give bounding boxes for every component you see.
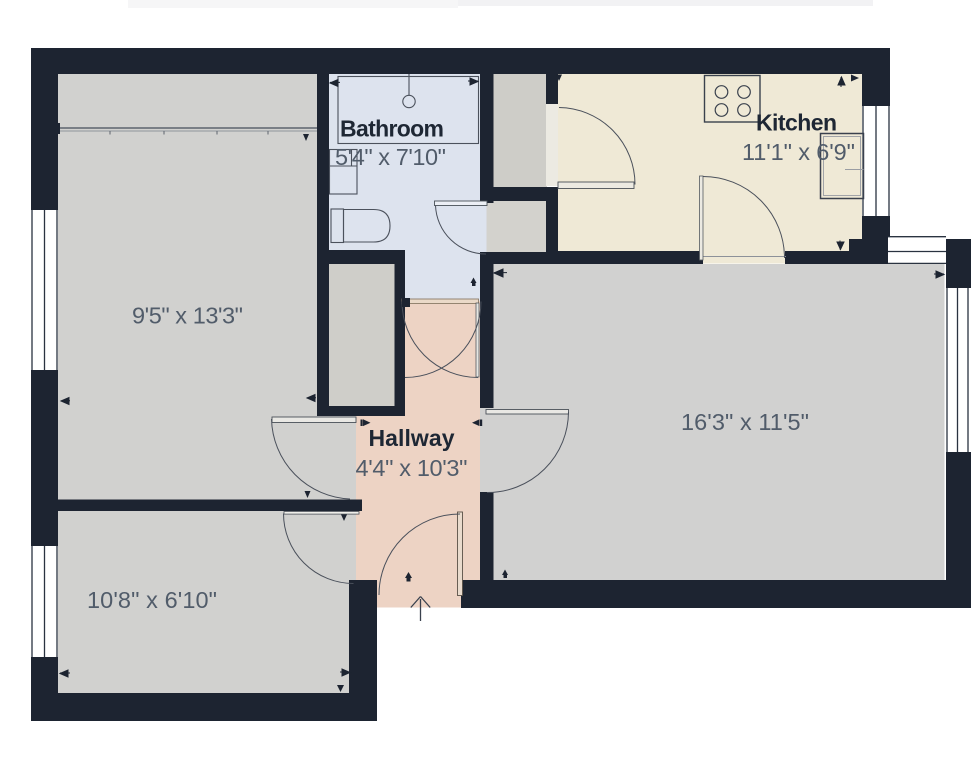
svg-text:16'3" x 11'5": 16'3" x 11'5"	[681, 409, 809, 435]
svg-text:4'4" x 10'3": 4'4" x 10'3"	[356, 455, 468, 481]
svg-text:11'1" x 6'9": 11'1" x 6'9"	[742, 139, 855, 165]
svg-text:Kitchen: Kitchen	[756, 110, 837, 136]
svg-text:5'4" x 7'10": 5'4" x 7'10"	[335, 144, 446, 170]
svg-text:9'5" x 13'3": 9'5" x 13'3"	[132, 303, 243, 329]
svg-text:Hallway: Hallway	[369, 425, 455, 451]
svg-text:Bathroom: Bathroom	[340, 116, 444, 142]
svg-text:10'8" x 6'10": 10'8" x 6'10"	[87, 587, 217, 613]
